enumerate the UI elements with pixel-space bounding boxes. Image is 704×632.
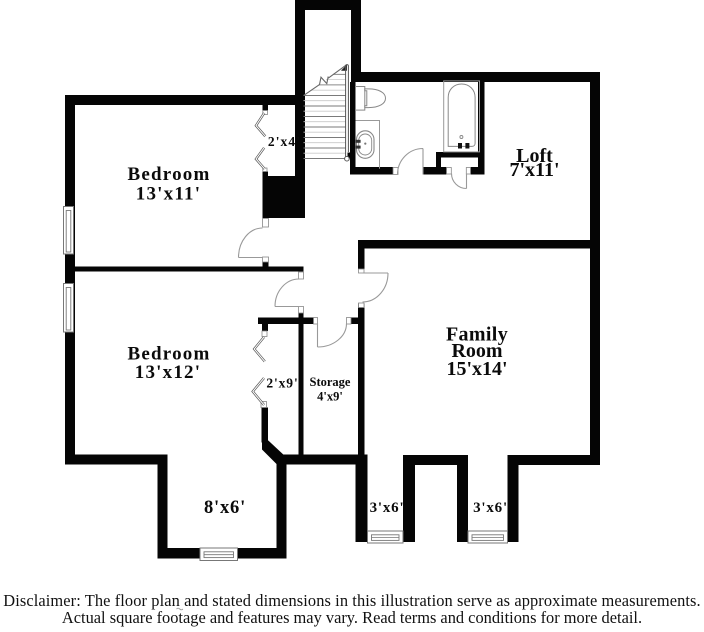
- svg-text:3'x6': 3'x6': [473, 500, 508, 516]
- svg-text:Actual square footage and feat: Actual square footage and features may v…: [62, 608, 642, 627]
- svg-text:7'x11': 7'x11': [509, 159, 559, 181]
- svg-text:13'x12': 13'x12': [135, 362, 201, 383]
- svg-text:13'x11': 13'x11': [136, 184, 201, 205]
- svg-text:15'x14': 15'x14': [446, 358, 507, 380]
- svg-text:2'x9': 2'x9': [266, 376, 298, 391]
- svg-text:8'x6': 8'x6': [204, 498, 246, 518]
- svg-text:3'x6': 3'x6': [370, 500, 405, 516]
- svg-text:2'x4': 2'x4': [268, 134, 301, 149]
- svg-text:4'x9': 4'x9': [317, 390, 343, 404]
- svg-text:Storage: Storage: [310, 375, 351, 389]
- svg-text:Bedroom: Bedroom: [128, 164, 211, 185]
